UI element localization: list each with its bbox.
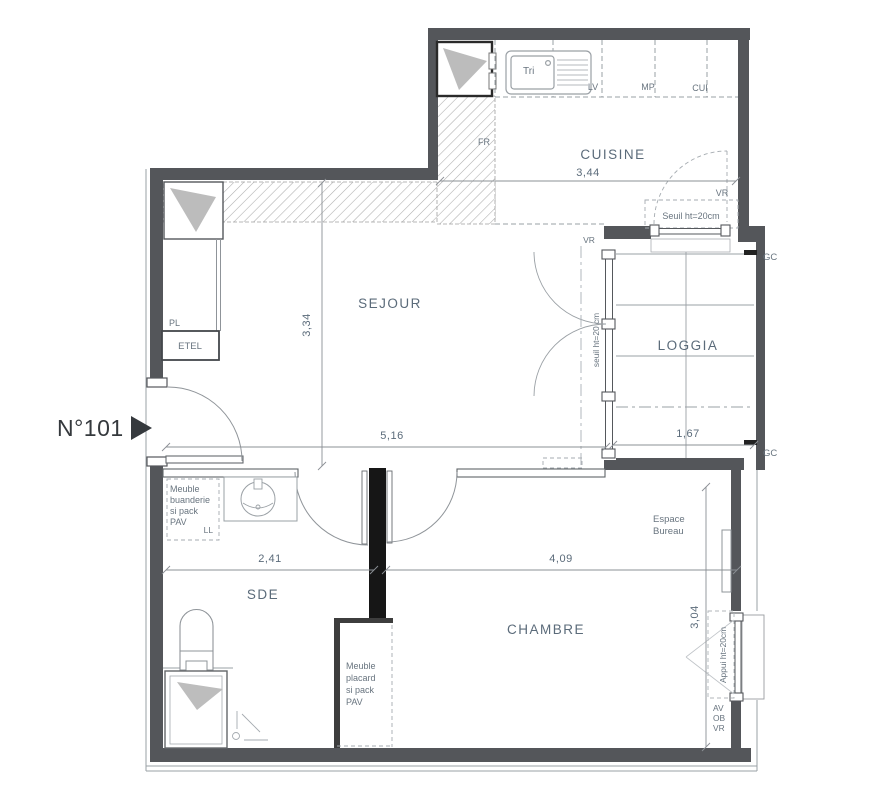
basin-tap-icon <box>254 479 262 489</box>
dim-loggia-width: 1,67 <box>676 428 699 440</box>
room-label-sejour: SEJOUR <box>358 296 422 311</box>
room-label-cuisine: CUISINE <box>580 147 645 162</box>
label-meuble-buanderie-2: buanderie <box>170 495 210 505</box>
label-appui-chambre: Appui ht=20cm <box>718 627 728 683</box>
chambre-closet <box>334 618 393 748</box>
dim-sejour-depth: 3,34 <box>301 313 313 336</box>
kitchen-shaft <box>437 42 496 96</box>
dim-cuisine-width: 3,44 <box>576 167 599 179</box>
label-meuble-buanderie-4: PAV <box>170 517 187 527</box>
gc-marker-top <box>744 250 757 255</box>
label-vr-chambre: VR <box>713 723 725 733</box>
label-meuble-placard-4: PAV <box>346 697 363 707</box>
label-espace-bureau-2: Bureau <box>653 526 684 537</box>
faucet-icon <box>546 61 551 66</box>
floor-plan: N°101 CUISINE SEJOUR LOGGIA SDE CHAMBRE … <box>0 0 883 800</box>
label-gc-bottom: GC <box>763 448 777 459</box>
kitchen-sink <box>506 51 591 94</box>
room-label-sde: SDE <box>247 587 279 602</box>
label-etel: ETEL <box>178 341 202 352</box>
radiator <box>722 530 731 592</box>
dim-sde-width: 2,41 <box>258 553 281 565</box>
label-pl: PL <box>169 318 180 328</box>
label-meuble-placard-1: Meuble <box>346 661 376 671</box>
dim-chambre-width: 4,09 <box>549 553 572 565</box>
label-seuil-cuisine: Seuil ht=20cm <box>662 211 719 221</box>
partition-post <box>369 468 386 620</box>
unit-number-label: N°101 <box>57 415 124 441</box>
room-label-loggia: LOGGIA <box>658 338 719 353</box>
room-label-chambre: CHAMBRE <box>507 622 585 637</box>
label-fr: FR <box>478 137 490 147</box>
chambre-door-leaf <box>387 471 392 543</box>
label-gc-top: GC <box>763 252 777 263</box>
shower-tray <box>165 671 227 748</box>
sde-door-leaf <box>362 471 367 544</box>
label-sink-tri: Tri <box>523 66 534 77</box>
entry-door-leaf <box>166 456 243 463</box>
floor-plan-drawing: N°101 CUISINE SEJOUR LOGGIA SDE CHAMBRE … <box>0 0 883 800</box>
label-vr-cuisine: VR <box>716 188 729 198</box>
label-vr-sejour: VR <box>583 235 595 245</box>
label-meuble-buanderie-1: Meuble <box>170 484 200 494</box>
label-mp: MP <box>641 82 655 92</box>
label-ob: OB <box>713 713 726 723</box>
label-meuble-placard-2: placard <box>346 673 376 683</box>
label-lv: LV <box>588 82 598 92</box>
label-meuble-placard-3: si pack <box>346 685 375 695</box>
label-meuble-buanderie-3: si pack <box>170 506 199 516</box>
dim-chambre-depth: 3,04 <box>689 605 701 628</box>
label-ll: LL <box>204 525 214 535</box>
label-cui: CUI <box>692 83 708 93</box>
label-av: AV <box>713 703 724 713</box>
label-espace-bureau-1: Espace <box>653 514 685 525</box>
label-seuil-sejour: seuil ht=20 cm <box>591 313 601 367</box>
dim-sejour-width: 5,16 <box>380 430 403 442</box>
